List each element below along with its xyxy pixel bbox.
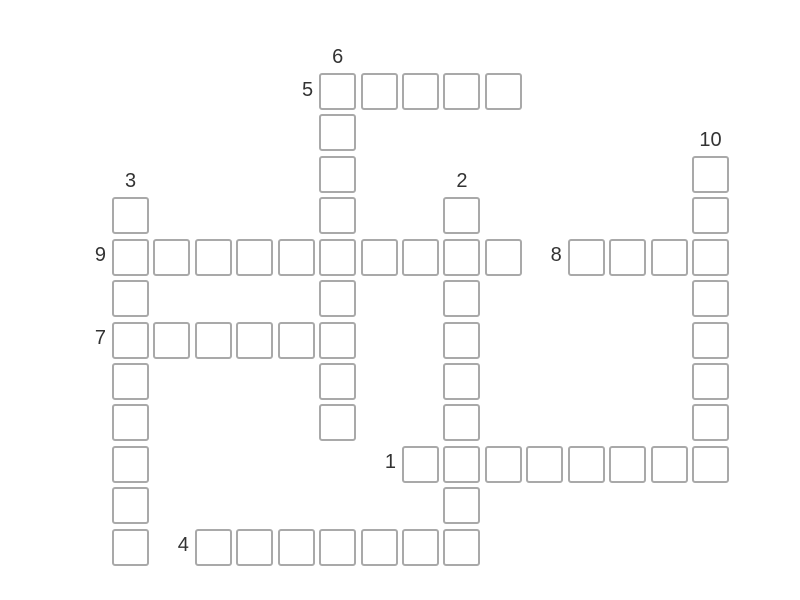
crossword-cell-r9c13[interactable] <box>651 446 688 483</box>
crossword-cell-r4c7[interactable] <box>402 239 439 276</box>
crossword-cell-r9c14[interactable] <box>692 446 729 483</box>
crossword-cell-r9c9[interactable] <box>485 446 522 483</box>
crossword-cell-r8c8[interactable] <box>443 404 480 441</box>
crossword-cell-r11c6[interactable] <box>361 529 398 566</box>
crossword-cell-r4c11[interactable] <box>568 239 605 276</box>
crossword-cell-r11c4[interactable] <box>278 529 315 566</box>
crossword-cell-r11c2[interactable] <box>195 529 232 566</box>
crossword-cell-r2c14[interactable] <box>692 156 729 193</box>
crossword-cell-r7c5[interactable] <box>319 363 356 400</box>
crossword-cell-r4c8[interactable] <box>443 239 480 276</box>
clue-number-10: 10 <box>692 129 729 151</box>
crossword-cell-r5c14[interactable] <box>692 280 729 317</box>
crossword-cell-r11c8[interactable] <box>443 529 480 566</box>
crossword-cell-r4c4[interactable] <box>278 239 315 276</box>
crossword-cell-r6c4[interactable] <box>278 322 315 359</box>
crossword-cell-r4c9[interactable] <box>485 239 522 276</box>
crossword-cell-r9c7[interactable] <box>402 446 439 483</box>
clue-number-5: 5 <box>273 79 313 101</box>
crossword-cell-r5c8[interactable] <box>443 280 480 317</box>
crossword-cell-r4c3[interactable] <box>236 239 273 276</box>
crossword-cell-r8c0[interactable] <box>112 404 149 441</box>
crossword-cell-r0c8[interactable] <box>443 73 480 110</box>
crossword-cell-r5c5[interactable] <box>319 280 356 317</box>
crossword-cell-r6c5[interactable] <box>319 322 356 359</box>
clue-number-3: 3 <box>112 170 149 192</box>
crossword-cell-r3c5[interactable] <box>319 197 356 234</box>
crossword-cell-r6c3[interactable] <box>236 322 273 359</box>
crossword-cell-r0c9[interactable] <box>485 73 522 110</box>
crossword-cell-r7c0[interactable] <box>112 363 149 400</box>
crossword-cell-r6c0[interactable] <box>112 322 149 359</box>
crossword-cell-r4c6[interactable] <box>361 239 398 276</box>
crossword-cell-r8c5[interactable] <box>319 404 356 441</box>
crossword-cell-r11c3[interactable] <box>236 529 273 566</box>
crossword-cell-r4c12[interactable] <box>609 239 646 276</box>
clue-number-8: 8 <box>522 244 562 266</box>
clue-number-7: 7 <box>66 327 106 349</box>
crossword-cell-r9c11[interactable] <box>568 446 605 483</box>
crossword-cell-r9c12[interactable] <box>609 446 646 483</box>
crossword-cell-r0c7[interactable] <box>402 73 439 110</box>
crossword-cell-r7c14[interactable] <box>692 363 729 400</box>
crossword-cell-r0c5[interactable] <box>319 73 356 110</box>
crossword-cell-r9c10[interactable] <box>526 446 563 483</box>
crossword-cell-r3c0[interactable] <box>112 197 149 234</box>
clue-number-1: 1 <box>356 451 396 473</box>
crossword-cell-r4c13[interactable] <box>651 239 688 276</box>
crossword-cell-r9c0[interactable] <box>112 446 149 483</box>
crossword-cell-r10c0[interactable] <box>112 487 149 524</box>
clue-number-6: 6 <box>319 46 356 68</box>
clue-number-4: 4 <box>149 534 189 556</box>
clue-number-2: 2 <box>443 170 480 192</box>
crossword-cell-r1c5[interactable] <box>319 114 356 151</box>
crossword-cell-r4c0[interactable] <box>112 239 149 276</box>
crossword-cell-r11c5[interactable] <box>319 529 356 566</box>
crossword-cell-r4c5[interactable] <box>319 239 356 276</box>
crossword-cell-r4c2[interactable] <box>195 239 232 276</box>
crossword-cell-r6c14[interactable] <box>692 322 729 359</box>
crossword-cell-r6c2[interactable] <box>195 322 232 359</box>
crossword-cell-r8c14[interactable] <box>692 404 729 441</box>
crossword-cell-r9c8[interactable] <box>443 446 480 483</box>
crossword-cell-r11c7[interactable] <box>402 529 439 566</box>
crossword-cell-r0c6[interactable] <box>361 73 398 110</box>
crossword-cell-r11c0[interactable] <box>112 529 149 566</box>
crossword-cell-r6c1[interactable] <box>153 322 190 359</box>
crossword-grid: 56103298714 <box>0 0 800 600</box>
crossword-cell-r6c8[interactable] <box>443 322 480 359</box>
crossword-cell-r10c8[interactable] <box>443 487 480 524</box>
clue-number-9: 9 <box>66 244 106 266</box>
crossword-cell-r5c0[interactable] <box>112 280 149 317</box>
crossword-cell-r4c14[interactable] <box>692 239 729 276</box>
crossword-cell-r3c8[interactable] <box>443 197 480 234</box>
crossword-cell-r7c8[interactable] <box>443 363 480 400</box>
crossword-cell-r4c1[interactable] <box>153 239 190 276</box>
crossword-cell-r2c5[interactable] <box>319 156 356 193</box>
crossword-cell-r3c14[interactable] <box>692 197 729 234</box>
